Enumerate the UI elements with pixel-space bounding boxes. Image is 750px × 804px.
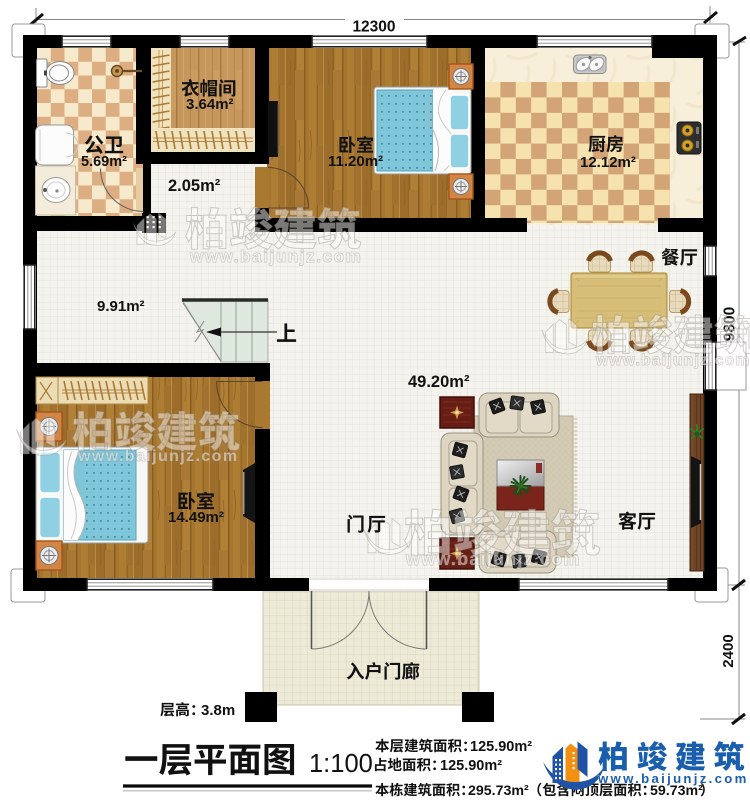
svg-text:9.91m²: 9.91m²: [97, 298, 145, 315]
svg-text:www.baijunjz.com: www.baijunjz.com: [77, 448, 239, 465]
svg-text:125.90m²: 125.90m²: [470, 739, 532, 755]
svg-text:3.64m²: 3.64m²: [186, 96, 234, 113]
svg-text:www.baijunjz.com: www.baijunjz.com: [597, 771, 749, 786]
svg-text:295.73m²: 295.73m²: [468, 783, 529, 799]
svg-text:5.69m²: 5.69m²: [81, 154, 127, 170]
svg-text:www.baijunjz.com: www.baijunjz.com: [595, 352, 750, 369]
svg-text:1:100: 1:100: [309, 750, 373, 778]
svg-text:2400: 2400: [720, 634, 737, 667]
svg-text:14.49m²: 14.49m²: [168, 509, 224, 526]
svg-text:3.8m: 3.8m: [201, 702, 235, 719]
svg-text:2.05m²: 2.05m²: [168, 177, 221, 195]
svg-text:125.90m²: 125.90m²: [440, 758, 502, 774]
svg-text:49.20m²: 49.20m²: [408, 373, 470, 391]
svg-text:www.baijunjz.com: www.baijunjz.com: [189, 247, 362, 266]
svg-text:11.20m²: 11.20m²: [328, 153, 383, 170]
svg-text:www.baijunjz.com: www.baijunjz.com: [405, 549, 581, 569]
svg-text:12300: 12300: [352, 19, 395, 36]
svg-text:12.12m²: 12.12m²: [580, 154, 636, 171]
